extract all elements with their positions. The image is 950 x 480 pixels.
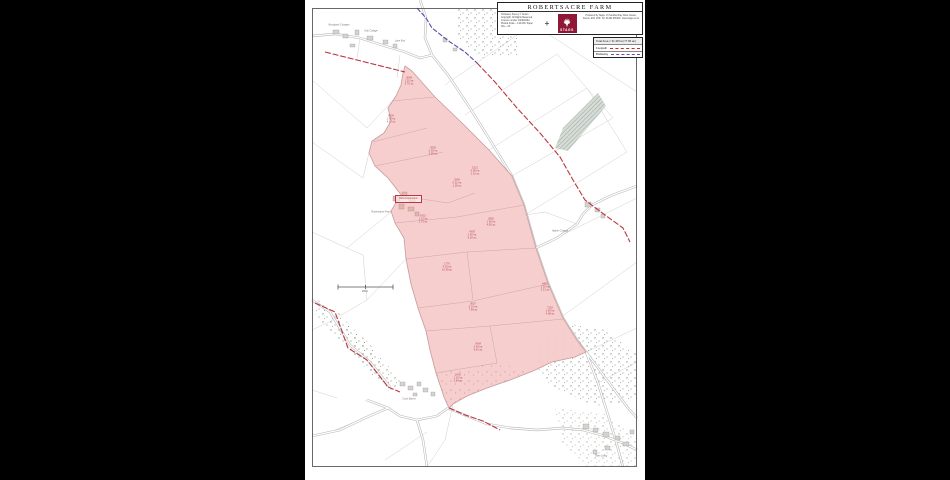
parcel-acres: 4.57 ac <box>387 121 396 124</box>
map-title: ROBERTSACRE FARM <box>498 3 642 12</box>
parcel-number: 6467 <box>541 284 550 287</box>
parcel-acres: 5.68 ac <box>429 153 438 156</box>
place-label: Town Living <box>595 455 608 458</box>
title-block: ROBERTSACRE FARM Ordnance Survey © Crown… <box>497 2 643 35</box>
agent-contact-text: Produced by Stags. 21 Southernhay West, … <box>578 12 642 34</box>
parcel-number: 9834 <box>387 116 396 119</box>
screenshot-canvas: 0048 1.52 ha 3.76 ac 9834 1.85 ha 4.57 a… <box>0 0 950 480</box>
total-area-label: Total Area = 31.38 ha (77.56 ac) <box>596 39 636 43</box>
footpath-label: Footpath <box>596 46 607 50</box>
place-label: Higher Cottage <box>552 230 568 233</box>
place-label: Woodpark Cottages <box>328 24 349 27</box>
parcel-label[interactable]: 9834 1.85 ha 4.57 ac <box>387 116 396 125</box>
parcel-number: 1776 <box>442 264 452 267</box>
parcel-label[interactable]: 7252 1.65 ha 4.08 ac <box>546 308 555 317</box>
parcel-hectares: 0.85 ha <box>471 171 480 174</box>
parcel-number: 2433 <box>454 375 463 378</box>
parcel-acres: 2.72 ac <box>419 221 428 224</box>
legend-box: Total Area = 31.38 ha (77.56 ac) Footpat… <box>593 37 643 58</box>
stag-icon <box>561 17 573 28</box>
parcel-number: 2546 <box>453 180 462 183</box>
parcel-acres: 4.82 ac <box>487 224 496 227</box>
parcel-hectares: 2.30 ha <box>429 151 438 154</box>
parcel-acres: 2.84 ac <box>454 380 463 383</box>
parcel-acres: 7.66 ac <box>469 309 478 312</box>
stags-logo[interactable]: STAGS <box>556 12 578 34</box>
stags-logo-text: STAGS <box>560 28 574 32</box>
parcel-hectares: 1.95 ha <box>487 222 496 225</box>
map-sheet: 0048 1.52 ha 3.76 ac 9834 1.85 ha 4.57 a… <box>305 0 645 480</box>
parcel-label[interactable]: 2805 1.95 ha 4.82 ac <box>487 219 496 228</box>
parcel-number: 0925 <box>429 148 438 151</box>
parcel-hectares: 1.85 ha <box>387 119 396 122</box>
place-label: Oak Cottage <box>364 30 377 33</box>
footpath-line-sample <box>610 48 640 49</box>
parcel-label[interactable]: 4393 2.45 ha 6.05 ac <box>468 232 477 241</box>
parcel-hectares: 4.20 ha <box>442 267 452 270</box>
parcel-hectares: 1.10 ha <box>419 219 428 222</box>
parcel-acres: 6.42 ac <box>474 349 483 352</box>
parcel-acres: 10.38 ac <box>442 269 452 272</box>
parcel-label[interactable]: 2433 1.15 ha 2.84 ac <box>454 375 463 384</box>
parcel-number: 1513 <box>471 168 480 171</box>
bridleway-label: Bridleway <box>596 52 608 56</box>
parcel-number: 0048 <box>405 78 414 81</box>
parcel-hectares: 0.52 ha <box>453 183 462 186</box>
parcel-number: 3657 <box>469 304 478 307</box>
legend-bridleway-row: Bridleway <box>594 51 642 57</box>
parcel-number: 7252 <box>546 308 555 311</box>
parcel-label[interactable]: 1776 4.20 ha 10.38 ac <box>442 264 452 273</box>
parcel-label[interactable]: 0048 1.52 ha 3.76 ac <box>405 78 414 87</box>
place-label: Court Barton <box>402 398 416 401</box>
north-crosshair-icon: + <box>538 12 556 34</box>
parcel-label[interactable]: 1513 0.85 ha 2.10 ac <box>471 168 480 177</box>
parcel-hectares: 1.52 ha <box>405 81 414 84</box>
scale-bar-label: 200m <box>362 290 368 293</box>
parcel-acres: 3.76 ac <box>405 83 414 86</box>
parcel-hectares: 2.45 ha <box>468 235 477 238</box>
parcel-label[interactable]: 0925 2.30 ha 5.68 ac <box>429 148 438 157</box>
parcel-acres: 6.05 ac <box>468 237 477 240</box>
parcel-label[interactable]: 2546 0.52 ha 1.28 ac <box>453 180 462 189</box>
parcel-acres: 3.21 ac <box>541 289 550 292</box>
farmstead-box-label[interactable]: Robertsacre Farm <box>395 195 422 203</box>
parcel-label[interactable]: 3434 2.60 ha 6.42 ac <box>474 344 483 353</box>
parcel-hectares: 3.10 ha <box>469 307 478 310</box>
place-label: Robertsacre Farm <box>371 211 390 214</box>
parcel-label[interactable]: 3657 3.10 ha 7.66 ac <box>469 304 478 313</box>
bridleway-line-sample <box>611 54 640 55</box>
parcel-acres: 4.08 ac <box>546 313 555 316</box>
parcel-label[interactable]: 8715 1.10 ha 2.72 ac <box>419 216 428 225</box>
place-label: Lane End <box>395 40 405 43</box>
parcel-number: 4393 <box>468 232 477 235</box>
parcel-number: 2805 <box>487 219 496 222</box>
parcel-acres: 1.28 ac <box>453 185 462 188</box>
parcel-hectares: 1.30 ha <box>541 287 550 290</box>
parcel-number: 8715 <box>419 216 428 219</box>
parcel-acres: 2.10 ac <box>471 173 480 176</box>
parcel-hectares: 1.65 ha <box>546 311 555 314</box>
parcel-number: 3434 <box>474 344 483 347</box>
parcel-hectares: 2.60 ha <box>474 347 483 350</box>
parcel-label[interactable]: 6467 1.30 ha 3.21 ac <box>541 284 550 293</box>
parcel-hectares: 1.15 ha <box>454 378 463 381</box>
copyright-text: Ordnance Survey © Crown Copyright. All R… <box>498 12 538 34</box>
